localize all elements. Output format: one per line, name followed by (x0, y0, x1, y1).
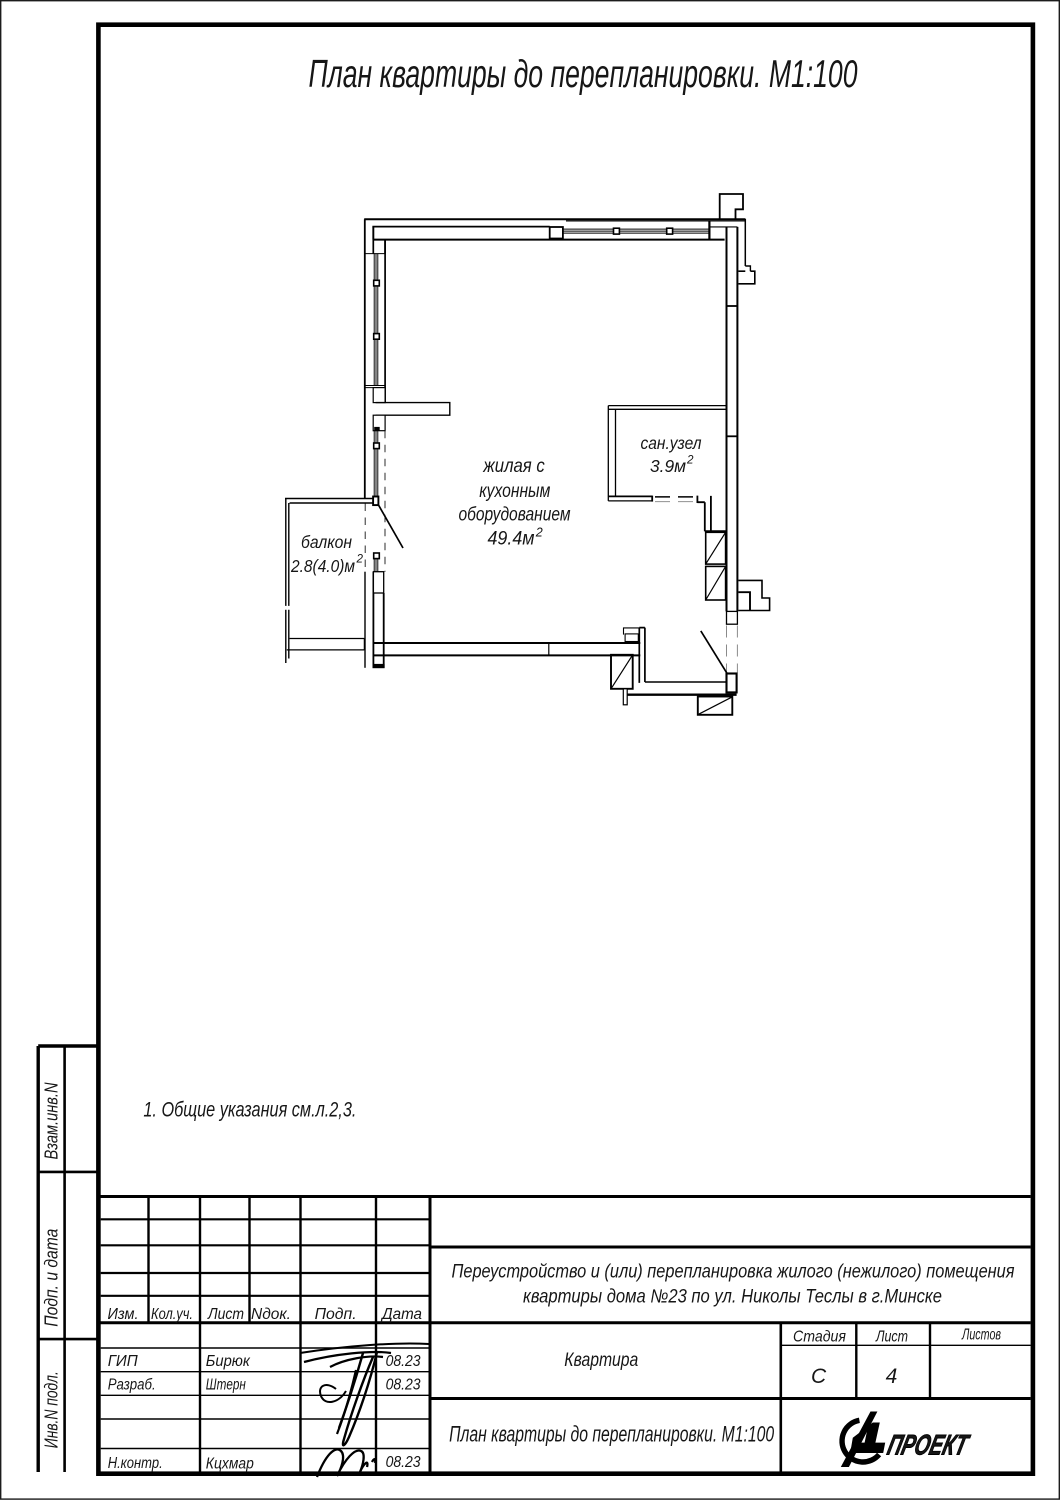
svg-text:Подп.: Подп. (315, 1306, 357, 1323)
svg-text:Листов: Листов (961, 1327, 1001, 1344)
svg-text:3.9м: 3.9м (650, 456, 686, 476)
svg-text:Переустройство и (или) перепла: Переустройство и (или) перепланировка жи… (452, 1262, 1015, 1283)
svg-text:Штерн: Штерн (206, 1377, 246, 1394)
svg-text:Изм.: Изм. (108, 1306, 139, 1323)
svg-text:Бирюк: Бирюк (206, 1353, 251, 1370)
svg-text:Разраб.: Разраб. (108, 1377, 156, 1394)
svg-text:ПРОЕКТ: ПРОЕКТ (884, 1430, 972, 1462)
svg-text:План квартиры до перепланировк: План квартиры до перепланировки. М1:100 (449, 1422, 774, 1447)
svg-text:4: 4 (886, 1365, 898, 1388)
svg-text:1. Общие указания см.л.2,3.: 1. Общие указания см.л.2,3. (143, 1098, 356, 1122)
svg-text:Взам.инв.N: Взам.инв.N (42, 1082, 62, 1160)
svg-text:2: 2 (535, 524, 544, 539)
svg-text:Nдок.: Nдок. (251, 1306, 291, 1323)
svg-text:2.8(4.0)м: 2.8(4.0)м (290, 556, 355, 576)
svg-text:сан.узел: сан.узел (641, 433, 702, 453)
svg-text:Подп. и дата: Подп. и дата (42, 1229, 62, 1327)
svg-text:Кол.уч.: Кол.уч. (151, 1306, 193, 1323)
svg-text:С: С (811, 1365, 827, 1388)
svg-text:жилая с: жилая с (482, 455, 545, 477)
svg-text:Н.контр.: Н.контр. (108, 1455, 163, 1472)
svg-text:Лист: Лист (875, 1328, 908, 1345)
svg-text:оборудованием: оборудованием (459, 504, 571, 526)
svg-text:Стадия: Стадия (793, 1328, 846, 1345)
svg-text:Кцхмар: Кцхмар (206, 1456, 254, 1473)
svg-text:кухонным: кухонным (479, 480, 550, 502)
svg-text:Инв.N подл.: Инв.N подл. (42, 1371, 62, 1448)
svg-text:2: 2 (356, 552, 364, 566)
svg-text:квартиры дома №23 по ул. Никол: квартиры дома №23 по ул. Николы Теслы в … (523, 1287, 942, 1308)
svg-text:Квартира: Квартира (564, 1350, 638, 1371)
svg-text:балкон: балкон (301, 532, 352, 552)
svg-text:Дата: Дата (380, 1306, 422, 1323)
svg-text:Лист: Лист (207, 1306, 244, 1323)
svg-text:08.23: 08.23 (386, 1353, 421, 1370)
svg-text:2: 2 (686, 453, 694, 467)
svg-text:08.23: 08.23 (386, 1454, 421, 1471)
svg-text:План квартиры до перепланировк: План квартиры до перепланировки. М1:100 (309, 53, 858, 96)
svg-text:49.4м: 49.4м (488, 527, 535, 549)
svg-text:08.23: 08.23 (386, 1377, 421, 1394)
svg-text:ГИП: ГИП (108, 1353, 139, 1370)
